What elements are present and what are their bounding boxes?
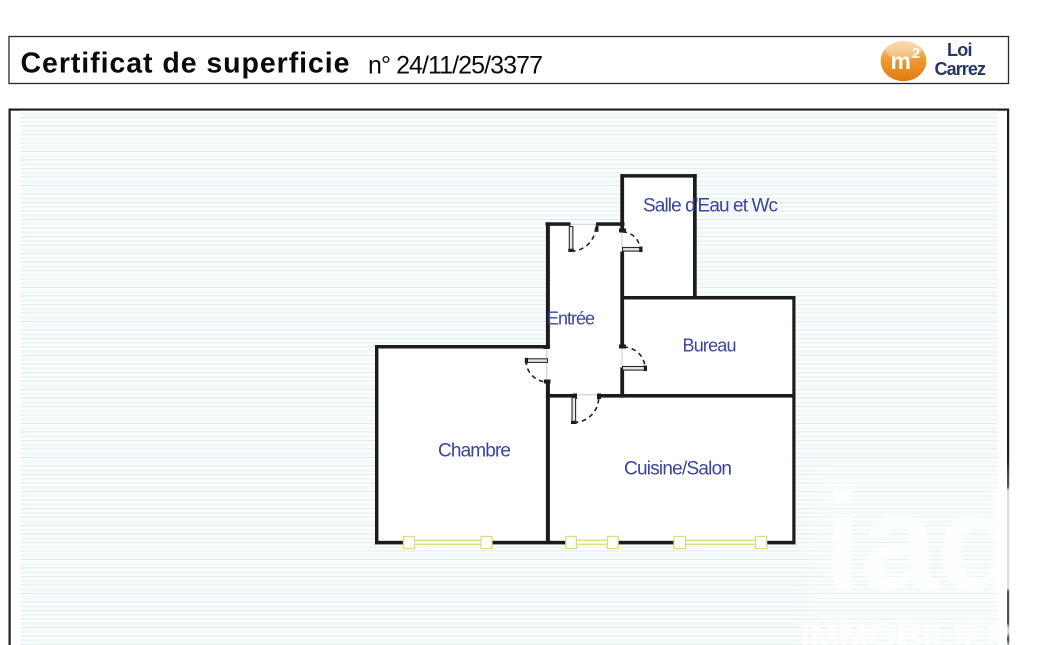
svg-text:IMMOBILIER: IMMOBILIER xyxy=(800,615,1012,645)
svg-text:Carrez: Carrez xyxy=(935,59,987,79)
svg-text:Entrée: Entrée xyxy=(547,309,595,329)
svg-text:Bureau: Bureau xyxy=(683,336,737,356)
svg-text:Loi: Loi xyxy=(947,40,973,60)
svg-text:Certificat de superficie: Certificat de superficie xyxy=(21,48,350,80)
svg-text:Cuisine/Salon: Cuisine/Salon xyxy=(624,459,732,480)
svg-text:m: m xyxy=(891,48,911,74)
svg-text:n° 24/11/25/3377: n° 24/11/25/3377 xyxy=(368,52,543,80)
svg-text:2: 2 xyxy=(912,46,920,62)
svg-text:Salle d'Eau et Wc: Salle d'Eau et Wc xyxy=(643,196,778,217)
svg-text:Chambre: Chambre xyxy=(438,441,511,462)
svg-text:iad: iad xyxy=(823,463,1022,620)
